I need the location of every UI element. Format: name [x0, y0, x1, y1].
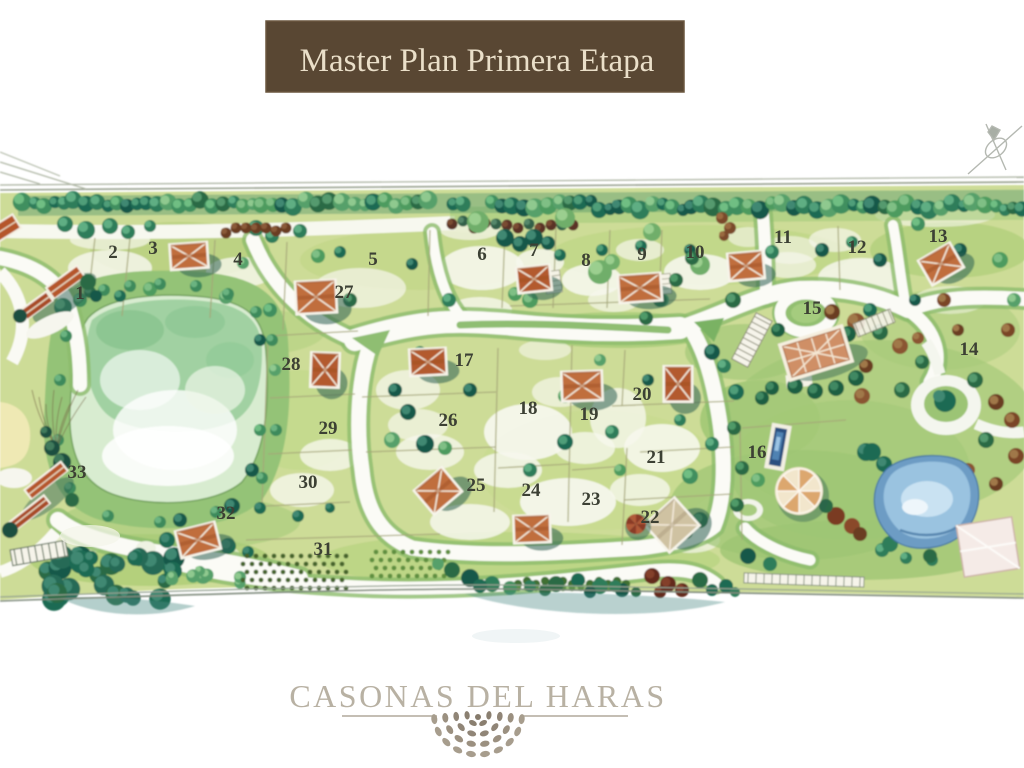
svg-text:10: 10 [686, 242, 705, 263]
svg-text:18: 18 [519, 398, 538, 419]
svg-text:27: 27 [335, 282, 355, 303]
svg-text:7: 7 [529, 240, 539, 261]
svg-text:3: 3 [148, 238, 158, 259]
svg-text:33: 33 [68, 462, 87, 483]
svg-text:26: 26 [439, 410, 458, 431]
svg-text:15: 15 [803, 298, 822, 319]
svg-text:5: 5 [368, 249, 378, 270]
svg-text:23: 23 [582, 489, 601, 510]
svg-text:12: 12 [848, 237, 867, 258]
svg-text:CASONAS DEL HARAS: CASONAS DEL HARAS [289, 678, 666, 714]
svg-text:16: 16 [748, 442, 767, 463]
svg-text:20: 20 [633, 384, 652, 405]
svg-text:19: 19 [580, 404, 599, 425]
svg-text:13: 13 [929, 226, 948, 247]
svg-text:25: 25 [467, 475, 486, 496]
svg-text:14: 14 [960, 339, 980, 360]
svg-text:Master Plan Primera Etapa: Master Plan Primera Etapa [300, 43, 655, 79]
svg-text:17: 17 [455, 350, 475, 371]
svg-text:8: 8 [581, 250, 591, 271]
svg-text:4: 4 [233, 249, 243, 270]
svg-text:9: 9 [637, 244, 647, 265]
svg-text:29: 29 [319, 418, 338, 439]
svg-text:11: 11 [774, 227, 792, 248]
svg-text:30: 30 [299, 472, 318, 493]
svg-text:24: 24 [522, 480, 542, 501]
svg-text:22: 22 [641, 507, 660, 528]
svg-text:32: 32 [217, 503, 236, 524]
svg-text:6: 6 [477, 244, 487, 265]
svg-text:28: 28 [282, 354, 301, 375]
svg-text:21: 21 [647, 447, 666, 468]
svg-text:31: 31 [314, 539, 333, 560]
svg-text:1: 1 [75, 283, 85, 304]
svg-text:2: 2 [108, 242, 118, 263]
